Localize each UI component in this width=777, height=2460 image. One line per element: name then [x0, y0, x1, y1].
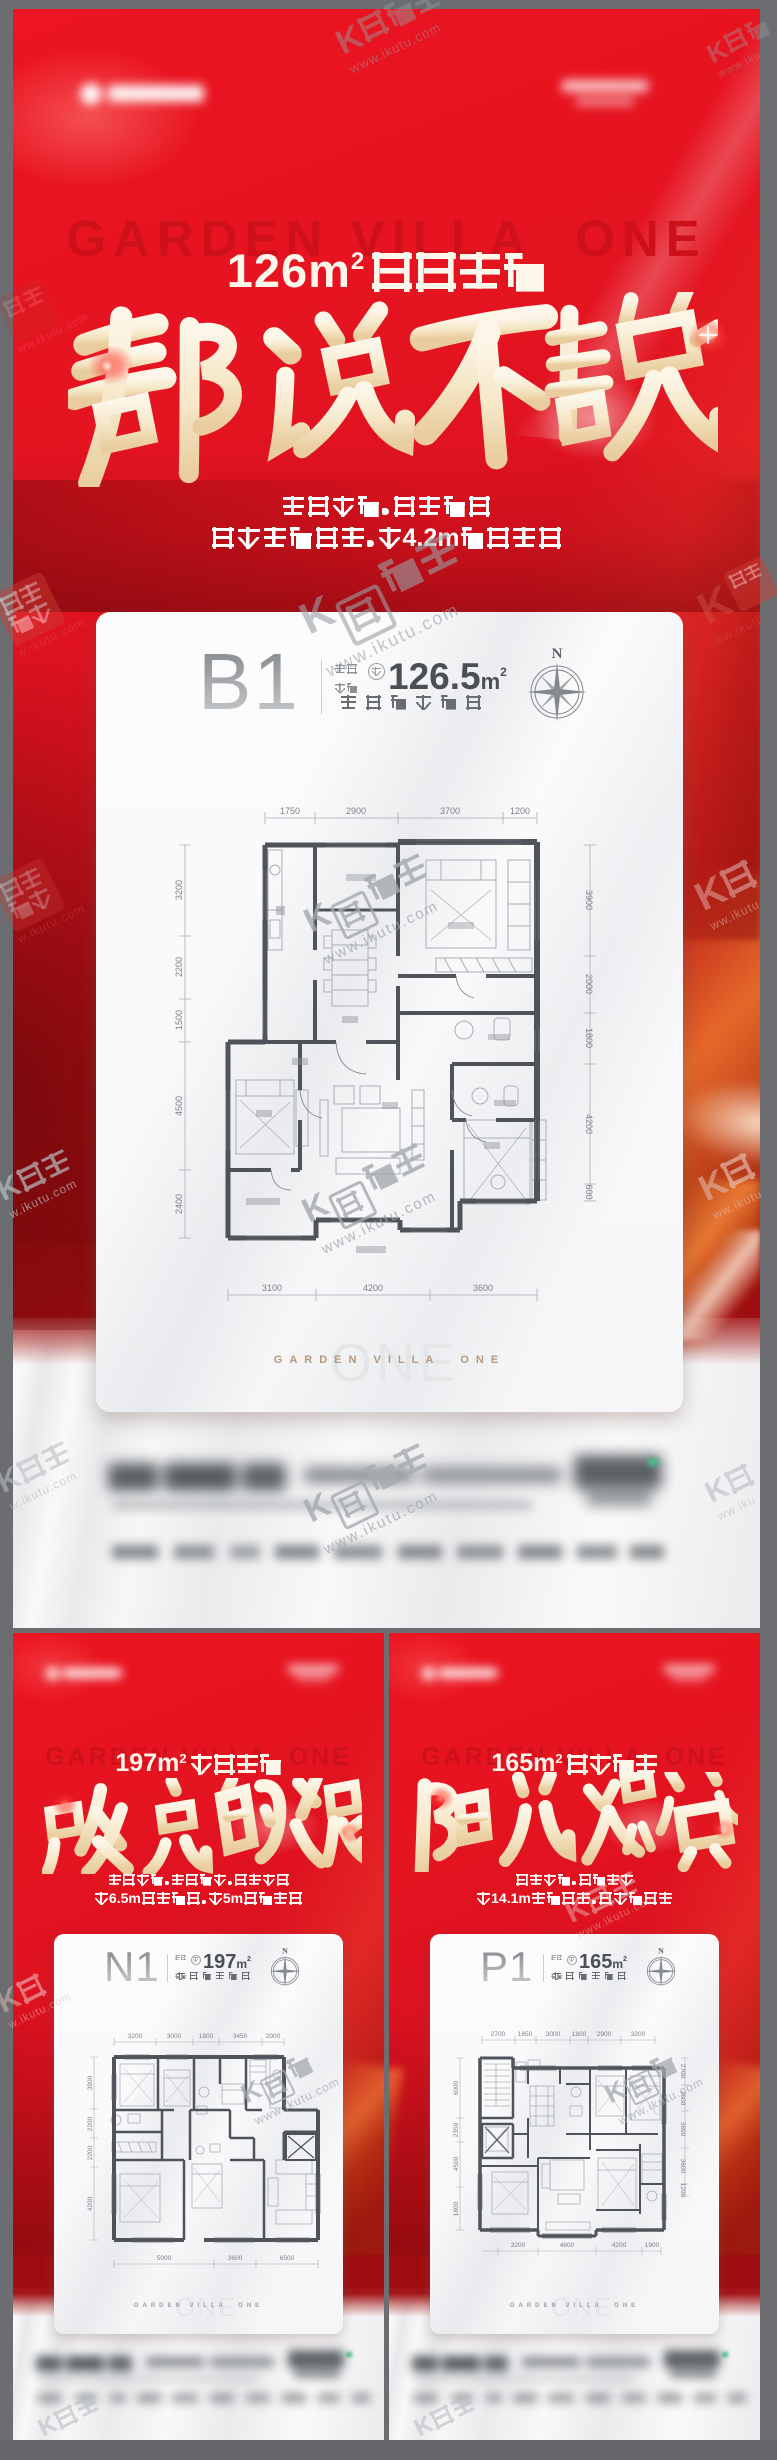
svg-text:2700: 2700 — [491, 2031, 506, 2038]
svg-text:N: N — [282, 1946, 288, 1955]
svg-text:4200: 4200 — [584, 1114, 594, 1134]
svg-text:1800: 1800 — [572, 2031, 587, 2038]
svg-text:3600: 3600 — [473, 1283, 493, 1293]
svg-text:1850: 1850 — [518, 2031, 533, 2038]
svg-text:2200: 2200 — [174, 957, 184, 977]
svg-text:2200: 2200 — [87, 2116, 94, 2131]
svg-text:600: 600 — [584, 1184, 594, 1199]
svg-text:N: N — [552, 646, 563, 662]
svg-text:2200: 2200 — [87, 2145, 94, 2160]
svg-text:2900: 2900 — [597, 2031, 612, 2038]
svg-text:4200: 4200 — [363, 1283, 383, 1293]
svg-text:3900: 3900 — [584, 890, 594, 910]
svg-text:4500: 4500 — [453, 2156, 460, 2171]
svg-text:1900: 1900 — [645, 2242, 660, 2249]
svg-text:3700: 3700 — [440, 806, 460, 816]
svg-text:3200: 3200 — [631, 2031, 646, 2038]
svg-text:3200: 3200 — [511, 2242, 526, 2249]
svg-text:1800: 1800 — [199, 2033, 214, 2040]
svg-text:2400: 2400 — [174, 1194, 184, 1214]
svg-text:3200: 3200 — [174, 880, 184, 900]
svg-text:3200: 3200 — [128, 2033, 143, 2040]
svg-text:N: N — [658, 1946, 664, 1955]
svg-text:1800: 1800 — [453, 2201, 460, 2216]
svg-text:3450: 3450 — [233, 2033, 248, 2040]
svg-text:4800: 4800 — [560, 2242, 575, 2249]
svg-text:3100: 3100 — [262, 1283, 282, 1293]
svg-text:2000: 2000 — [266, 2033, 281, 2040]
svg-text:4200: 4200 — [87, 2196, 94, 2211]
svg-text:2700: 2700 — [679, 2064, 686, 2079]
svg-text:2600: 2600 — [679, 2091, 686, 2106]
svg-text:2000: 2000 — [584, 974, 594, 994]
svg-text:3000: 3000 — [167, 2033, 182, 2040]
svg-text:3690: 3690 — [679, 2122, 686, 2137]
svg-text:2900: 2900 — [346, 806, 366, 816]
svg-text:3900: 3900 — [87, 2075, 94, 2090]
svg-text:6000: 6000 — [453, 2080, 460, 2095]
svg-text:1750: 1750 — [280, 806, 300, 816]
svg-text:2350: 2350 — [453, 2122, 460, 2137]
svg-text:4200: 4200 — [612, 2242, 627, 2249]
svg-text:1200: 1200 — [510, 806, 530, 816]
svg-text:1800: 1800 — [584, 1028, 594, 1048]
svg-text:1200: 1200 — [679, 2183, 686, 2198]
svg-text:3600: 3600 — [679, 2159, 686, 2174]
svg-text:6500: 6500 — [280, 2255, 295, 2262]
svg-text:5000: 5000 — [157, 2255, 172, 2262]
svg-text:4500: 4500 — [174, 1096, 184, 1116]
svg-text:3000: 3000 — [546, 2031, 561, 2038]
svg-text:3600: 3600 — [228, 2255, 243, 2262]
svg-text:1500: 1500 — [174, 1010, 184, 1030]
